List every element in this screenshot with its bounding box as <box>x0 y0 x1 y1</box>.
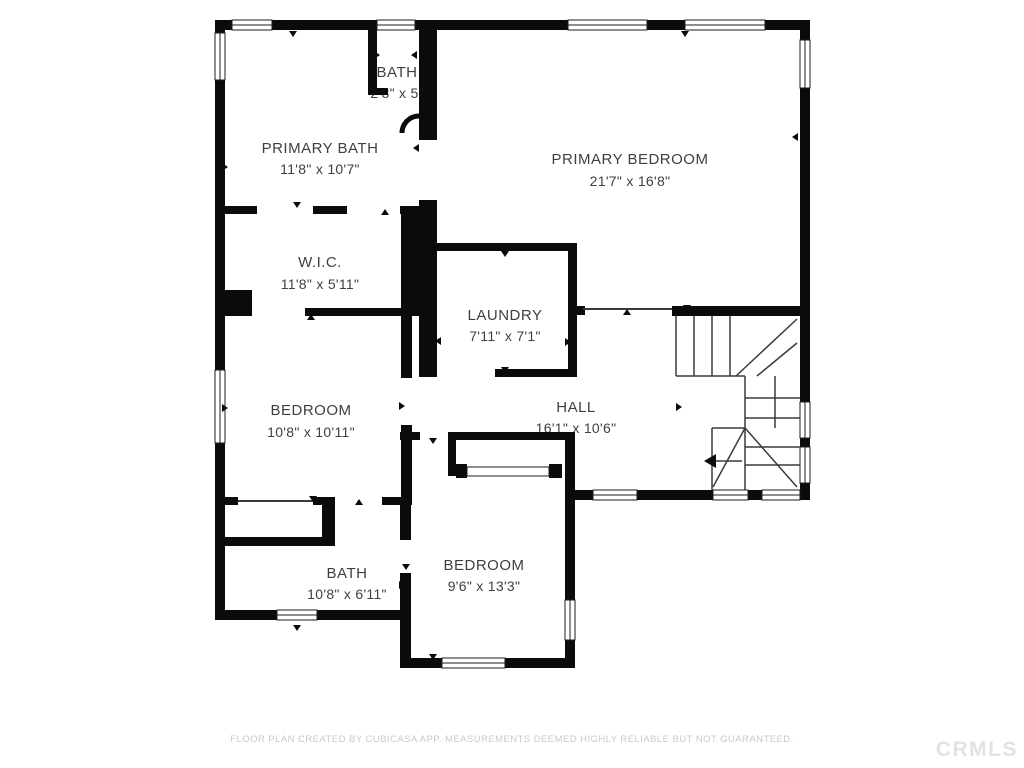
door-marker-icon <box>399 402 405 410</box>
room-name-label: BEDROOM <box>443 557 524 574</box>
window <box>377 20 415 30</box>
window <box>685 20 765 30</box>
room-name-label: BEDROOM <box>270 402 351 419</box>
closet-doors <box>467 467 549 476</box>
door-marker-icon <box>413 144 419 152</box>
door-marker-icon <box>792 133 798 141</box>
window <box>593 490 637 500</box>
door-marker-icon <box>429 438 437 444</box>
staircase <box>676 316 800 490</box>
room-dims-label: 11'8" x 10'7" <box>280 161 360 177</box>
stairs-direction-arrow-icon <box>704 454 716 468</box>
room-label-hall: HALL 16'1" x 10'6" <box>536 399 617 436</box>
window <box>568 20 647 30</box>
door-marker-icon <box>501 251 509 257</box>
room-name-label: LAUNDRY <box>468 307 543 324</box>
window <box>762 490 800 500</box>
room-label-primary-bedroom: PRIMARY BEDROOM 21'7" x 16'8" <box>552 151 709 189</box>
room-dims-label: 9'6" x 13'3" <box>448 578 521 594</box>
window <box>800 402 810 438</box>
floor-plan-page: BATH 2'8" x 5' PRIMARY BATH 11'8" x 10'7… <box>0 0 1024 768</box>
footer-disclaimer: FLOOR PLAN CREATED BY CUBICASA APP. MEAS… <box>0 734 1024 745</box>
window <box>565 600 575 640</box>
room-label-wic: W.I.C. 11'8" x 5'11" <box>281 254 360 292</box>
room-name-label: PRIMARY BEDROOM <box>552 151 709 168</box>
room-label-bath-bottom: BATH 10'8" x 6'11" <box>307 565 387 602</box>
room-name-label: BATH <box>327 565 368 582</box>
room-label-laundry: LAUNDRY 7'11" x 7'1" <box>468 307 543 344</box>
room-label-primary-bath: PRIMARY BATH 11'8" x 10'7" <box>262 140 379 177</box>
door-marker-icon <box>676 403 682 411</box>
door-arc <box>402 116 419 133</box>
window <box>442 658 505 668</box>
room-label-bath-top: BATH 2'8" x 5' <box>370 64 421 101</box>
room-label-bedroom-bottom: BEDROOM 9'6" x 13'3" <box>443 557 524 594</box>
room-name-label: BATH <box>377 64 418 81</box>
room-dims-label: 11'8" x 5'11" <box>281 276 360 292</box>
door-marker-icon <box>293 625 301 631</box>
door-marker-icon <box>355 499 363 505</box>
window <box>277 610 317 620</box>
room-name-label: PRIMARY BATH <box>262 140 379 157</box>
room-dims-label: 21'7" x 16'8" <box>590 173 671 189</box>
room-name-label: W.I.C. <box>298 254 342 271</box>
room-name-label: HALL <box>556 399 596 416</box>
window <box>713 490 748 500</box>
window <box>800 447 810 483</box>
door-marker-icon <box>402 564 410 570</box>
crmls-watermark: CRMLS <box>936 738 1018 762</box>
room-dims-label: 10'8" x 6'11" <box>307 586 387 602</box>
room-dims-label: 10'8" x 10'11" <box>267 424 355 440</box>
room-dims-label: 7'11" x 7'1" <box>469 328 541 344</box>
window <box>215 33 225 80</box>
door-marker-icon <box>293 202 301 208</box>
window <box>800 40 810 88</box>
room-label-bedroom-left: BEDROOM 10'8" x 10'11" <box>267 402 355 440</box>
window <box>232 20 272 30</box>
door-marker-icon <box>289 31 297 37</box>
door-marker-icon <box>411 51 417 59</box>
floor-plan-svg: BATH 2'8" x 5' PRIMARY BATH 11'8" x 10'7… <box>0 0 1024 768</box>
door-marker-icon <box>381 209 389 215</box>
door-marker-icon <box>681 31 689 37</box>
